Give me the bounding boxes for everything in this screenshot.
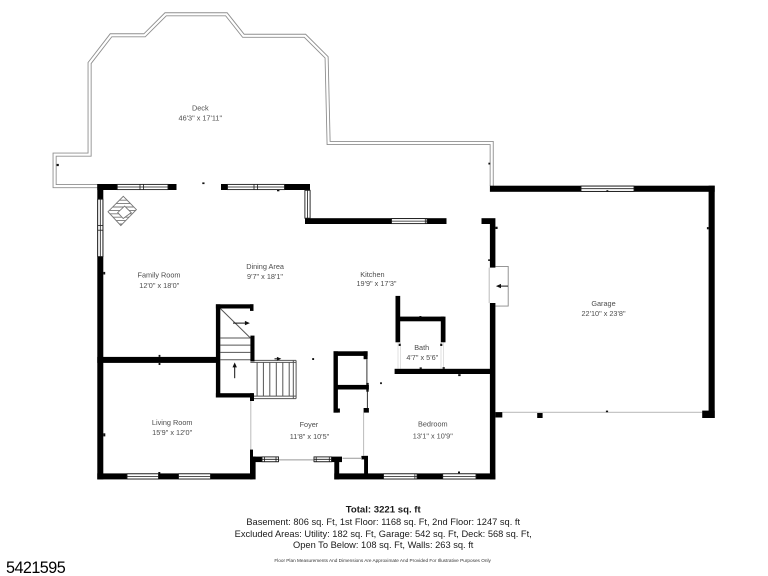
svg-text:Garage: Garage — [591, 299, 615, 308]
svg-text:4'7" x 5'6": 4'7" x 5'6" — [406, 353, 438, 362]
svg-text:Bath: Bath — [414, 343, 429, 352]
svg-text:Bedroom: Bedroom — [418, 420, 448, 429]
svg-text:Kitchen: Kitchen — [360, 270, 384, 279]
svg-text:Floor Plan Measurements And Di: Floor Plan Measurements And Dimensions A… — [274, 558, 491, 563]
svg-text:9'7" x 18'1": 9'7" x 18'1" — [247, 272, 283, 281]
svg-text:46'3" x 17'11": 46'3" x 17'11" — [179, 114, 223, 123]
svg-text:5421595: 5421595 — [6, 559, 66, 576]
svg-text:Basement: 806 sq. Ft, 1st Floo: Basement: 806 sq. Ft, 1st Floor: 1168 sq… — [246, 517, 520, 527]
svg-text:11'8" x 10'5": 11'8" x 10'5" — [290, 432, 330, 441]
svg-text:19'9" x 17'3": 19'9" x 17'3" — [356, 279, 396, 288]
svg-text:Foyer: Foyer — [300, 420, 319, 429]
svg-text:Family Room: Family Room — [138, 271, 181, 280]
svg-text:Excluded Areas: Utility: 182 s: Excluded Areas: Utility: 182 sq. Ft, Gar… — [235, 529, 532, 539]
svg-text:Open To Below: 108 sq. Ft, Wal: Open To Below: 108 sq. Ft, Walls: 263 sq… — [293, 540, 474, 550]
svg-text:22'10" x 23'8": 22'10" x 23'8" — [581, 309, 625, 318]
svg-text:Living Room: Living Room — [152, 418, 193, 427]
svg-text:13'1" x 10'9": 13'1" x 10'9" — [413, 432, 453, 441]
svg-text:15'9" x 12'0": 15'9" x 12'0" — [152, 428, 192, 437]
svg-text:Deck: Deck — [192, 104, 209, 113]
svg-text:Total: 3221 sq. ft: Total: 3221 sq. ft — [346, 505, 422, 516]
svg-text:12'0" x 18'0": 12'0" x 18'0" — [139, 281, 179, 290]
svg-text:Dining Area: Dining Area — [246, 262, 285, 271]
